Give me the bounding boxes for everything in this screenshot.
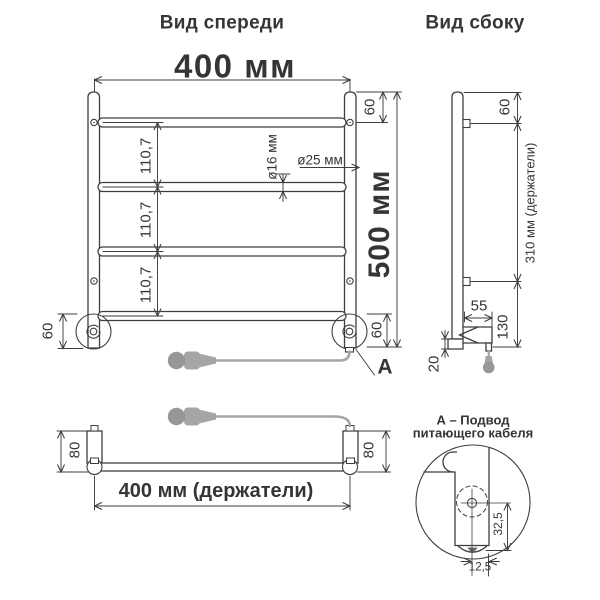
front-view bbox=[58, 79, 402, 375]
side-holders bbox=[463, 120, 470, 286]
dim-label-spacing-3: 110,7 bbox=[139, 267, 154, 303]
power-plug-top bbox=[168, 408, 216, 426]
front-rungs bbox=[98, 118, 346, 321]
dim-label-80-right: 80 bbox=[362, 442, 377, 459]
dim-label-side-60: 60 bbox=[498, 99, 513, 116]
side-pipe bbox=[452, 92, 463, 339]
front-power-cable bbox=[168, 352, 350, 370]
front-post-left bbox=[88, 92, 100, 348]
side-power-cable bbox=[483, 351, 495, 373]
dim-label-60-top-right: 60 bbox=[363, 99, 378, 116]
dim-label-side-55: 55 bbox=[471, 299, 488, 314]
dim-label-12-5: 12,5 bbox=[469, 562, 491, 574]
dim-label-spacing-2: 110,7 bbox=[139, 202, 154, 238]
cable-cord-front bbox=[216, 352, 350, 361]
holder-top bbox=[463, 120, 470, 128]
front-posts bbox=[88, 92, 356, 348]
dim-label-400-holders: 400 мм (держатели) bbox=[119, 481, 314, 501]
dim-label-height-500: 500 мм bbox=[365, 170, 395, 279]
side-housing bbox=[460, 327, 493, 351]
side-view-title: Вид сбоку bbox=[425, 14, 524, 33]
dim-label-60-bottom-left: 60 bbox=[41, 323, 56, 340]
holder-bottom bbox=[463, 278, 470, 286]
front-wall-screws bbox=[91, 119, 353, 284]
technical-drawing-towel-rail: Вид спереди Вид сбоку 400 мм 500 мм 110,… bbox=[0, 0, 600, 600]
top-tab-left bbox=[91, 426, 98, 432]
dim-label-80-left: 80 bbox=[68, 442, 83, 459]
dim-label-side-310: 310 мм (держатели) bbox=[524, 143, 537, 264]
callout-a-label: А bbox=[377, 357, 392, 378]
top-power-cable bbox=[168, 408, 350, 427]
drawing-linework bbox=[0, 0, 600, 600]
callout-a-leader bbox=[356, 350, 375, 376]
cable-cord-top bbox=[216, 417, 350, 427]
top-bar bbox=[100, 463, 344, 471]
detail-rung-cap bbox=[443, 452, 453, 472]
dim-label-side-130: 130 bbox=[496, 314, 511, 339]
dim-label-tube-diameter: ø16 мм bbox=[265, 134, 279, 180]
dim-label-60-bottom-right: 60 bbox=[370, 322, 385, 339]
side-foot bbox=[448, 339, 463, 349]
dim-label-spacing-1: 110,7 bbox=[139, 138, 154, 174]
detail-a-view bbox=[416, 445, 530, 576]
detail-a-title-line2: питающего кабеля bbox=[413, 427, 533, 440]
power-plug-front bbox=[168, 352, 216, 370]
front-post-right bbox=[345, 92, 357, 348]
power-plug-side bbox=[483, 356, 495, 373]
dim-label-32-5: 32,5 bbox=[492, 512, 504, 535]
dim-label-side-20: 20 bbox=[427, 356, 442, 373]
front-view-title: Вид спереди bbox=[160, 14, 285, 33]
dim-label-width-400: 400 мм bbox=[174, 50, 296, 83]
cable-gland-side bbox=[486, 343, 492, 351]
dim-label-collector-diameter: ø25 мм bbox=[297, 153, 343, 167]
